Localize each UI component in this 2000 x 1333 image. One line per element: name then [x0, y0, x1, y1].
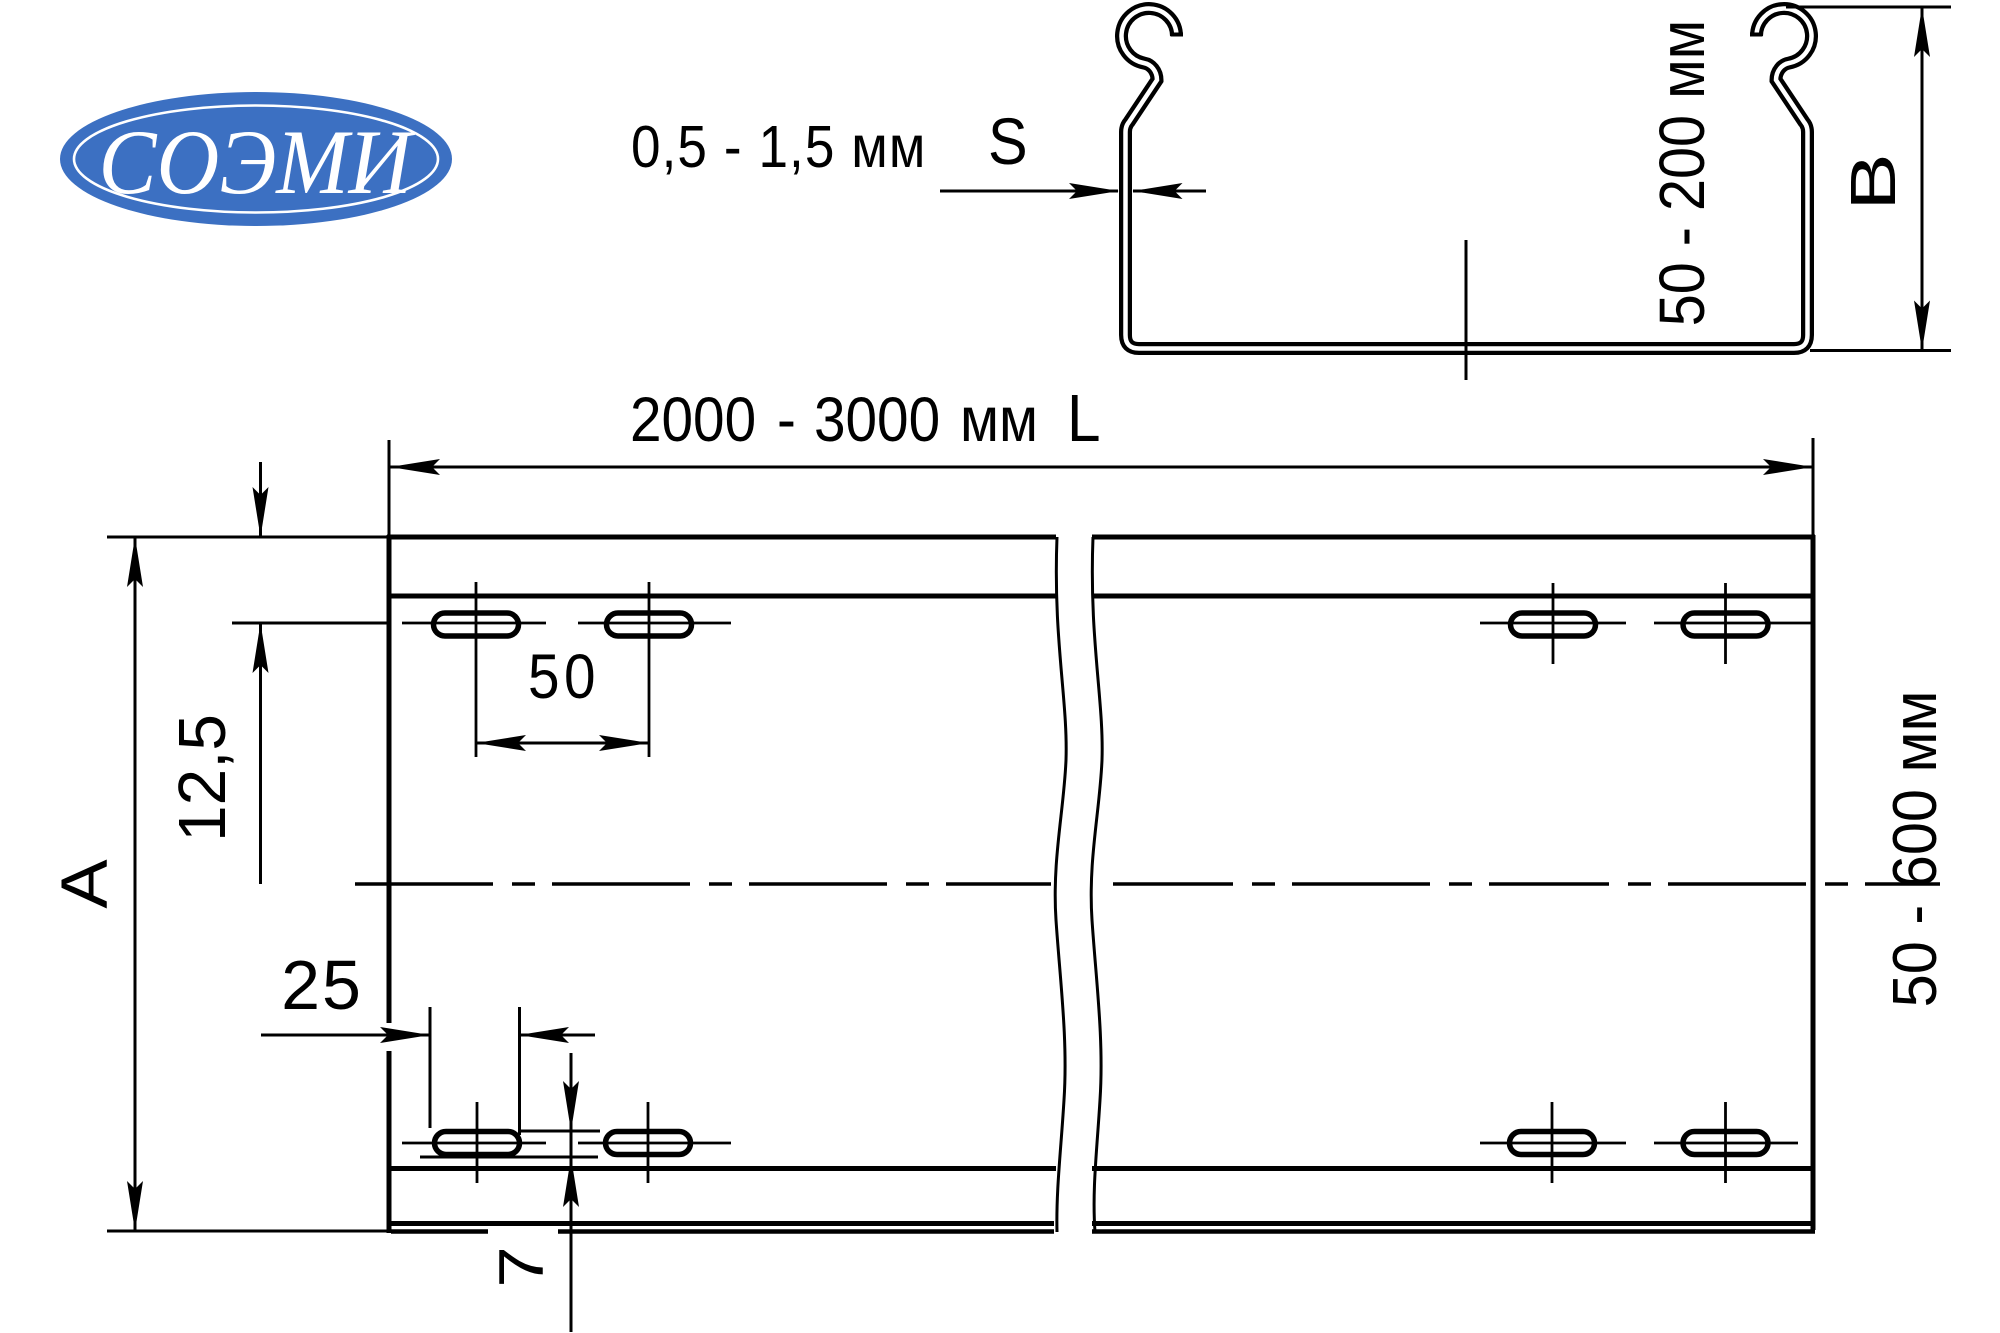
svg-text:50 - 200 мм: 50 - 200 мм — [1646, 20, 1717, 327]
svg-text:3000: 3000 — [814, 384, 940, 454]
svg-text:50 - 600 мм: 50 - 600 мм — [1880, 691, 1949, 1008]
svg-text:7: 7 — [486, 1246, 556, 1287]
svg-text:S: S — [988, 105, 1028, 179]
svg-text:A: A — [48, 859, 121, 909]
svg-text:L: L — [1067, 380, 1101, 456]
svg-text:0,5 - 1,5 мм: 0,5 - 1,5 мм — [631, 113, 926, 179]
svg-text:50: 50 — [528, 641, 600, 711]
svg-text:B: B — [1838, 153, 1910, 211]
svg-text:мм: мм — [960, 384, 1038, 454]
svg-text:25: 25 — [281, 946, 363, 1024]
svg-text:12,5: 12,5 — [165, 714, 240, 842]
svg-text:СОЭМИ: СОЭМИ — [99, 112, 416, 214]
svg-text:2000: 2000 — [630, 384, 756, 454]
svg-text:-: - — [777, 384, 796, 454]
